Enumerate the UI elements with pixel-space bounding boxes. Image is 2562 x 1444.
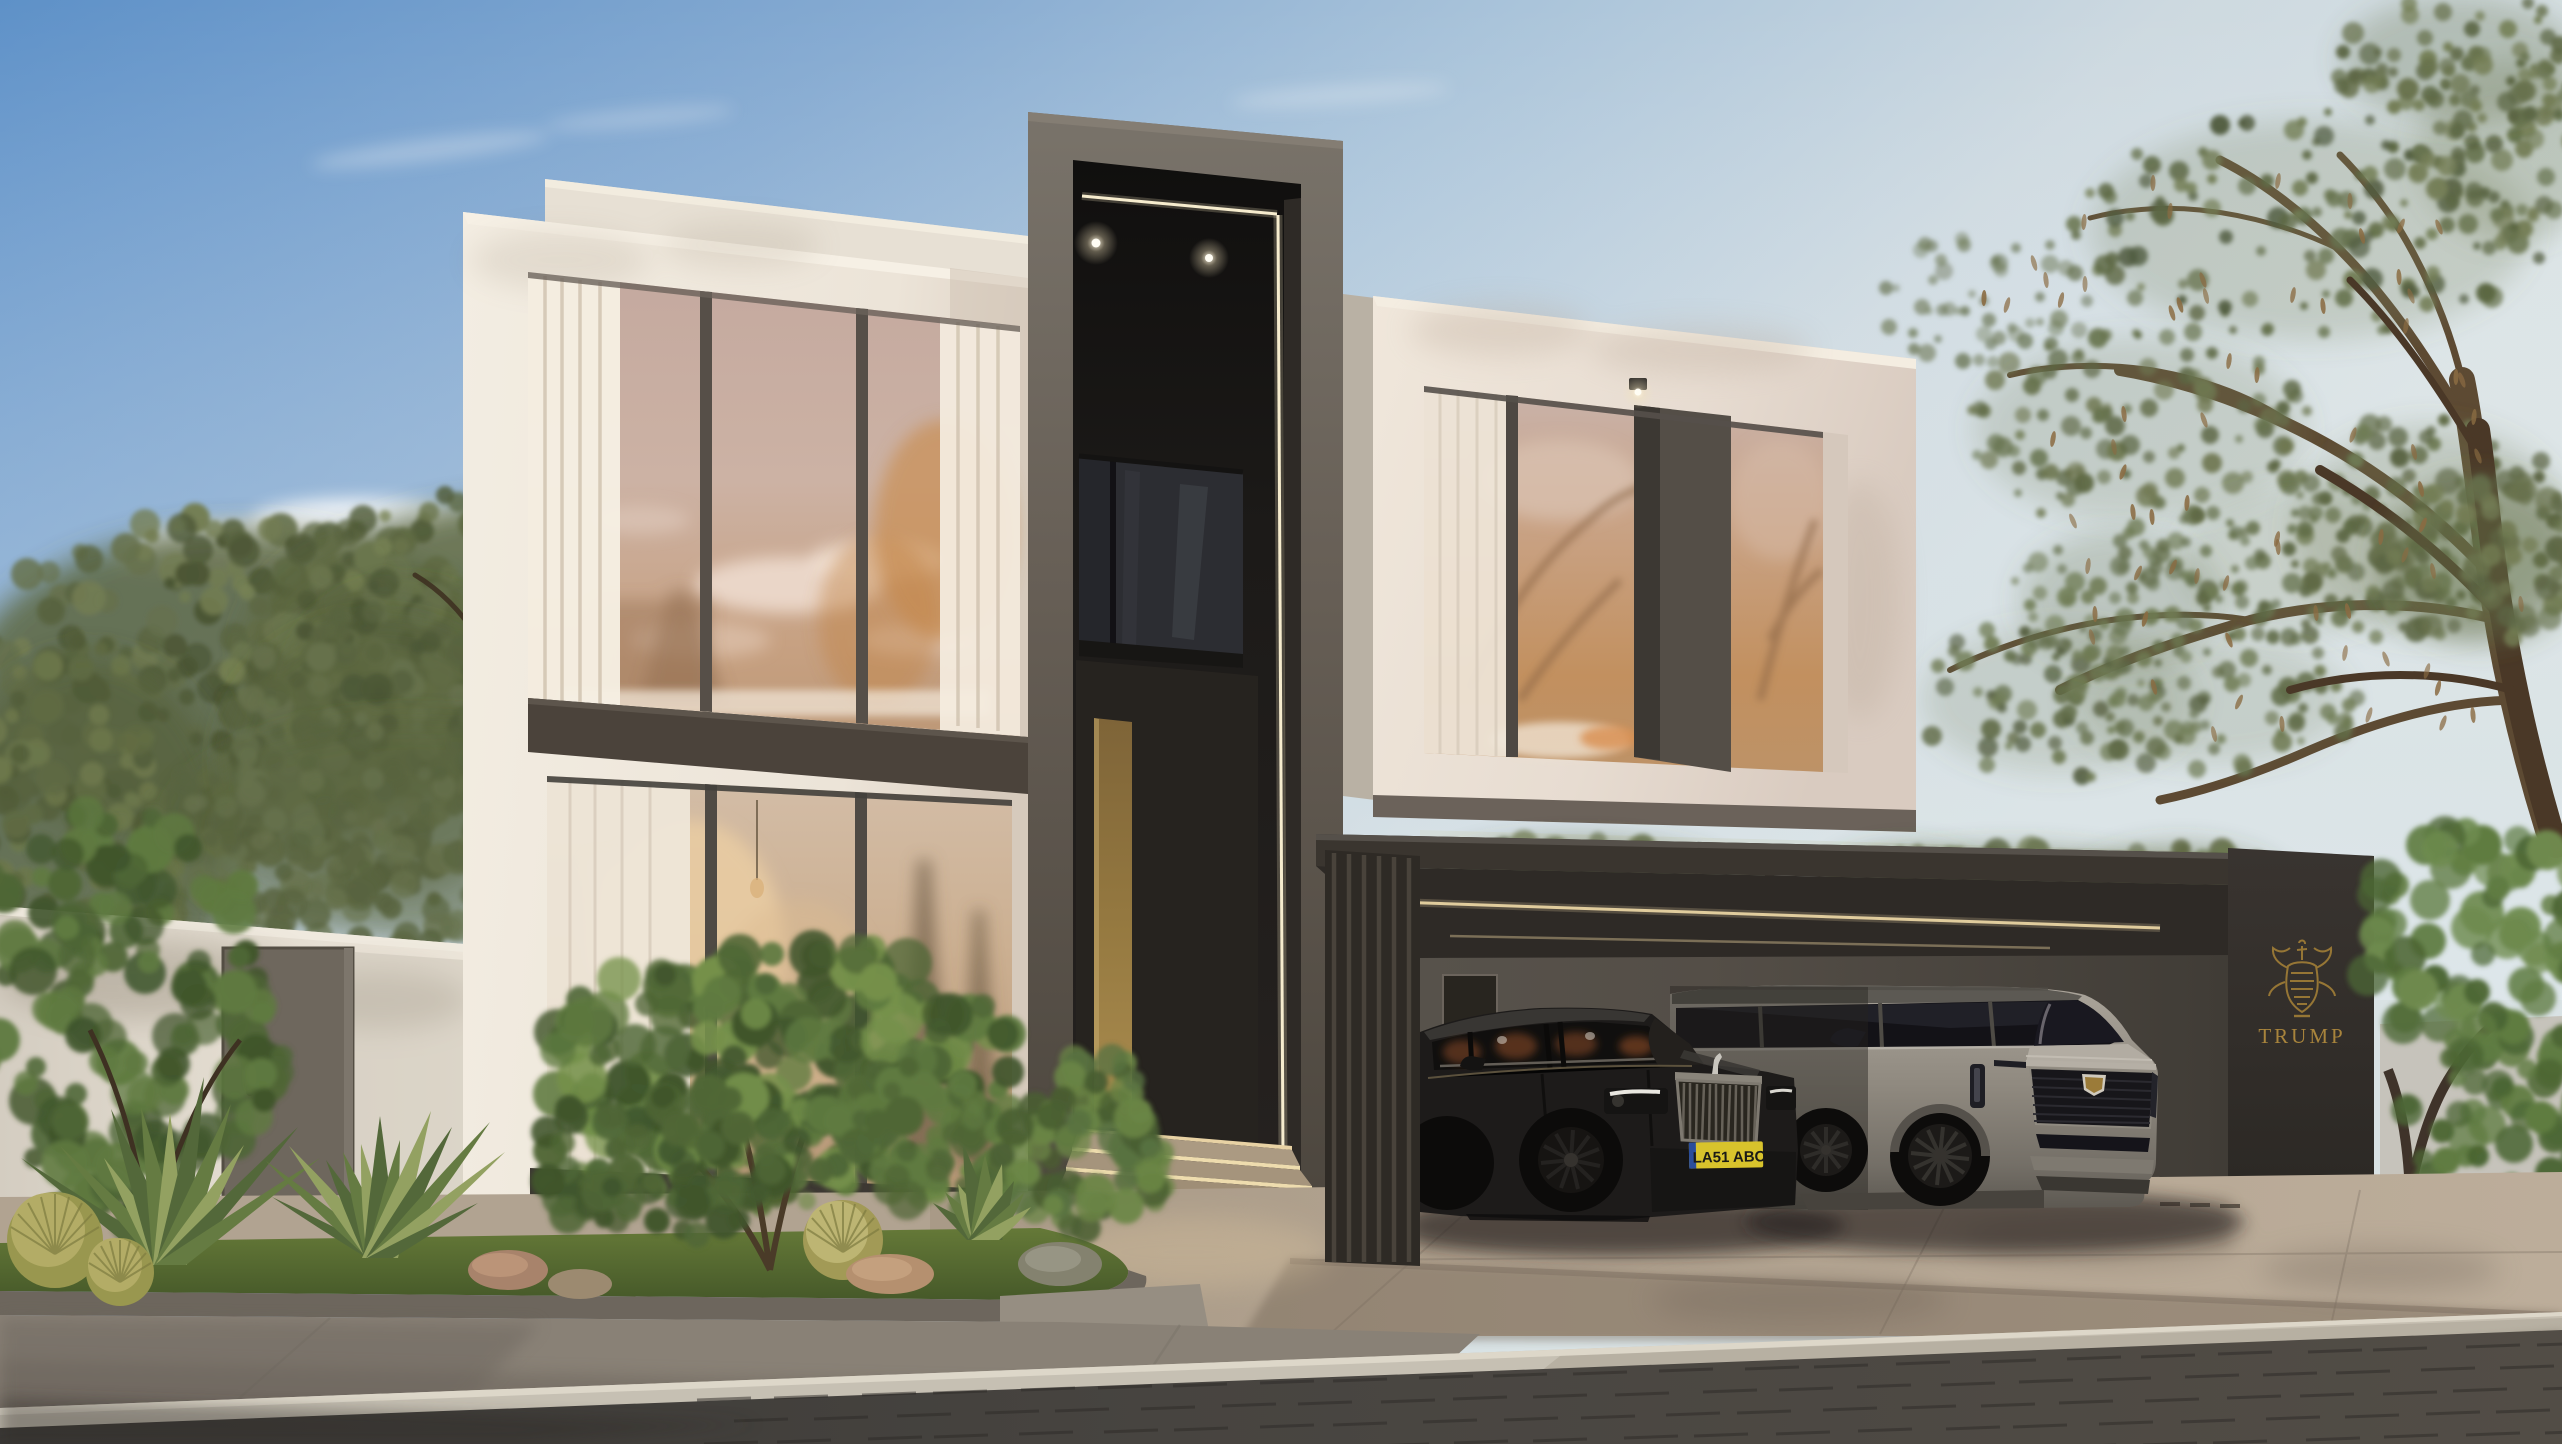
svg-text:TRUMP: TRUMP — [2258, 1024, 2345, 1048]
svg-text:LA51 ABC: LA51 ABC — [1693, 1148, 1766, 1166]
